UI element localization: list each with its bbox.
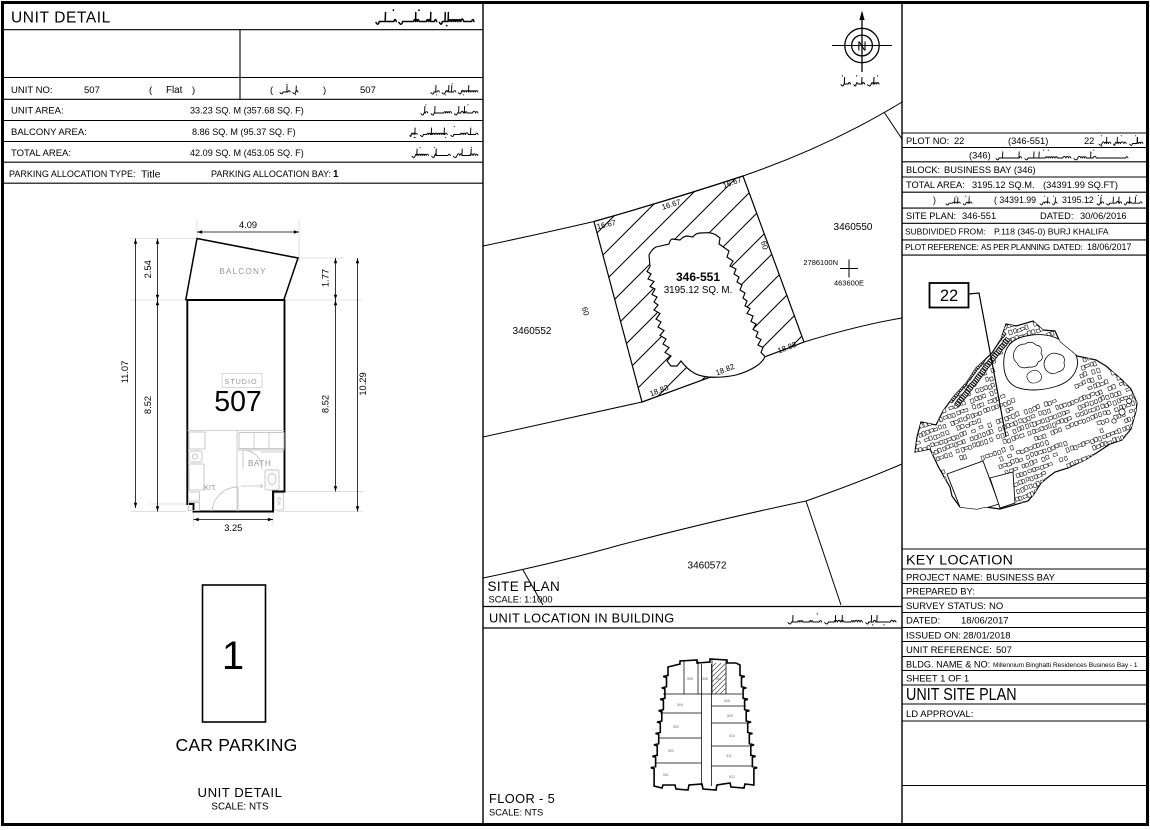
svg-text:PARKING ALLOCATION BAY:: PARKING ALLOCATION BAY: xyxy=(211,169,331,179)
svg-text:3195.12 SQ. M.: 3195.12 SQ. M. xyxy=(664,285,733,296)
svg-text:P.118 (345-0) BURJ KHALIFA: P.118 (345-0) BURJ KHALIFA xyxy=(994,227,1109,237)
svg-text:LD APPROVAL:: LD APPROVAL: xyxy=(906,709,973,720)
svg-text:AS PER PLANNING: AS PER PLANNING xyxy=(981,243,1050,252)
svg-text:346-551: 346-551 xyxy=(962,211,996,221)
svg-text:501: 501 xyxy=(663,773,669,777)
svg-text:3460552: 3460552 xyxy=(513,326,552,337)
svg-text:TOTAL AREA:: TOTAL AREA: xyxy=(11,148,71,159)
svg-text:(: ( xyxy=(149,85,153,96)
svg-text:8.52: 8.52 xyxy=(143,396,153,414)
svg-text:3195.12 SQ.M.: 3195.12 SQ.M. xyxy=(972,180,1035,190)
svg-text:KEY LOCATION: KEY LOCATION xyxy=(906,553,1013,569)
svg-text:M.D: M.D xyxy=(277,497,282,505)
svg-text:22: 22 xyxy=(954,136,964,146)
svg-text:507: 507 xyxy=(360,85,376,96)
svg-text:BALCONY AREA:: BALCONY AREA: xyxy=(11,127,87,138)
svg-text:SURVEY STATUS:: SURVEY STATUS: xyxy=(906,601,986,612)
svg-text:3.25: 3.25 xyxy=(224,523,242,533)
svg-text:22: 22 xyxy=(940,287,958,305)
svg-text:504: 504 xyxy=(677,703,683,707)
svg-text:): ) xyxy=(323,85,326,96)
svg-text:UNIT SITE PLAN: UNIT SITE PLAN xyxy=(906,686,1017,705)
svg-text:1: 1 xyxy=(333,169,339,180)
svg-text:18/06/2017: 18/06/2017 xyxy=(1087,242,1131,252)
svg-text:ISSUED ON:: ISSUED ON: xyxy=(906,630,961,641)
svg-text:): ) xyxy=(933,195,936,205)
svg-text:BLOCK:: BLOCK: xyxy=(906,165,940,175)
svg-text:DATED:: DATED: xyxy=(906,616,940,627)
svg-text:BUSINESS BAY (346): BUSINESS BAY (346) xyxy=(944,165,1036,175)
svg-text:UNIT REFERENCE:: UNIT REFERENCE: xyxy=(906,645,992,656)
svg-text:3460550: 3460550 xyxy=(834,222,873,233)
svg-text:8.86 SQ. M (95.37 SQ. F): 8.86 SQ. M (95.37 SQ. F) xyxy=(192,127,296,137)
svg-text:N: N xyxy=(857,38,866,53)
svg-text:): ) xyxy=(192,85,195,96)
svg-text:PLOT NO:: PLOT NO: xyxy=(906,136,949,146)
svg-text:UNIT DETAIL: UNIT DETAIL xyxy=(198,785,283,800)
svg-text:511: 511 xyxy=(726,754,732,758)
svg-text:11.07: 11.07 xyxy=(120,361,130,384)
svg-text:SCALE: NTS: SCALE: NTS xyxy=(211,802,269,813)
svg-text:513: 513 xyxy=(729,734,735,738)
svg-text:4.09: 4.09 xyxy=(239,220,257,230)
svg-text:30/06/2016: 30/06/2016 xyxy=(1080,211,1127,221)
svg-text:502: 502 xyxy=(668,749,674,753)
svg-text:FLOOR - 5: FLOOR - 5 xyxy=(489,791,555,806)
svg-text:BLDG. NAME & NO:: BLDG. NAME & NO: xyxy=(906,659,990,669)
svg-text:2786100N: 2786100N xyxy=(803,258,838,267)
svg-text:507: 507 xyxy=(84,85,100,96)
svg-text:3460572: 3460572 xyxy=(688,561,727,572)
svg-text:PREPARED BY:: PREPARED BY: xyxy=(906,587,975,598)
svg-text:507: 507 xyxy=(214,386,262,418)
svg-text:KIT.: KIT. xyxy=(204,483,217,492)
svg-text:8.52: 8.52 xyxy=(321,395,331,413)
svg-text:PARKING ALLOCATION TYPE:: PARKING ALLOCATION TYPE: xyxy=(9,169,136,179)
svg-text:463600E: 463600E xyxy=(834,279,864,288)
svg-text:Flat: Flat xyxy=(166,85,183,96)
svg-text:33.23 SQ. M (357.68 SQ. F): 33.23 SQ. M (357.68 SQ. F) xyxy=(190,106,304,116)
svg-text:60: 60 xyxy=(580,306,591,318)
svg-text::: : xyxy=(1087,195,1089,205)
svg-text:(346-551): (346-551) xyxy=(1008,136,1048,146)
svg-text:503: 503 xyxy=(673,725,679,729)
svg-text:42.09 SQ. M (453.05 SQ. F): 42.09 SQ. M (453.05 SQ. F) xyxy=(190,148,304,158)
svg-text:505: 505 xyxy=(687,677,693,681)
svg-text:1: 1 xyxy=(222,634,244,678)
svg-text:SUBDIVIDED FROM:: SUBDIVIDED FROM: xyxy=(905,227,986,237)
svg-text:508: 508 xyxy=(724,699,730,703)
svg-text:UNIT DETAIL: UNIT DETAIL xyxy=(11,10,111,27)
svg-text:NO: NO xyxy=(989,601,1003,612)
svg-text:UNIT LOCATION IN BUILDING: UNIT LOCATION IN BUILDING xyxy=(489,611,675,626)
svg-text:STUDIO: STUDIO xyxy=(224,377,257,386)
svg-text:507: 507 xyxy=(716,677,722,681)
svg-text:UNIT AREA:: UNIT AREA: xyxy=(11,106,64,117)
svg-text:509: 509 xyxy=(727,714,733,718)
svg-text:BUSINESS BAY: BUSINESS BAY xyxy=(986,572,1056,583)
svg-text:2.54: 2.54 xyxy=(143,260,153,278)
svg-text:TOTAL AREA:: TOTAL AREA: xyxy=(906,180,965,190)
svg-text:PROJECT NAME:: PROJECT NAME: xyxy=(906,572,983,583)
svg-text:SITE PLAN:: SITE PLAN: xyxy=(906,211,956,221)
svg-text:PLOT REFERENCE:: PLOT REFERENCE: xyxy=(905,242,979,252)
svg-text:DATED:: DATED: xyxy=(1053,242,1083,252)
svg-text:(346): (346) xyxy=(969,151,991,161)
svg-text:1.77: 1.77 xyxy=(321,269,331,287)
svg-text:28/01/2018: 28/01/2018 xyxy=(963,630,1011,641)
svg-text:512: 512 xyxy=(729,775,735,779)
svg-text:DATED:: DATED: xyxy=(1040,211,1073,221)
svg-text:BATH: BATH xyxy=(248,459,271,468)
svg-text:SITE PLAN: SITE PLAN xyxy=(488,579,561,594)
svg-text:346-551: 346-551 xyxy=(676,270,720,284)
svg-text:( 34391.99: ( 34391.99 xyxy=(994,195,1036,205)
svg-text:18/06/2017: 18/06/2017 xyxy=(961,616,1009,627)
svg-text:507: 507 xyxy=(996,645,1012,656)
svg-text:Millennium Binghatti Residence: Millennium Binghatti Residences Business… xyxy=(993,662,1138,669)
svg-text:SCALE: 1:1000: SCALE: 1:1000 xyxy=(489,595,553,605)
svg-text:UNIT NO:: UNIT NO: xyxy=(11,85,53,96)
svg-text:Title: Title xyxy=(141,169,161,181)
svg-text:SCALE: NTS: SCALE: NTS xyxy=(489,808,543,818)
svg-text:BALCONY: BALCONY xyxy=(219,267,267,276)
svg-text:(34391.99 SQ.FT): (34391.99 SQ.FT) xyxy=(1043,180,1118,190)
svg-text:22: 22 xyxy=(1084,136,1094,146)
svg-text:10.29: 10.29 xyxy=(358,372,368,395)
svg-text:SHEET 1 OF 1: SHEET 1 OF 1 xyxy=(906,674,969,685)
svg-text:(: ( xyxy=(270,85,274,96)
svg-text:506: 506 xyxy=(702,677,708,681)
svg-text:CAR PARKING: CAR PARKING xyxy=(175,735,297,755)
